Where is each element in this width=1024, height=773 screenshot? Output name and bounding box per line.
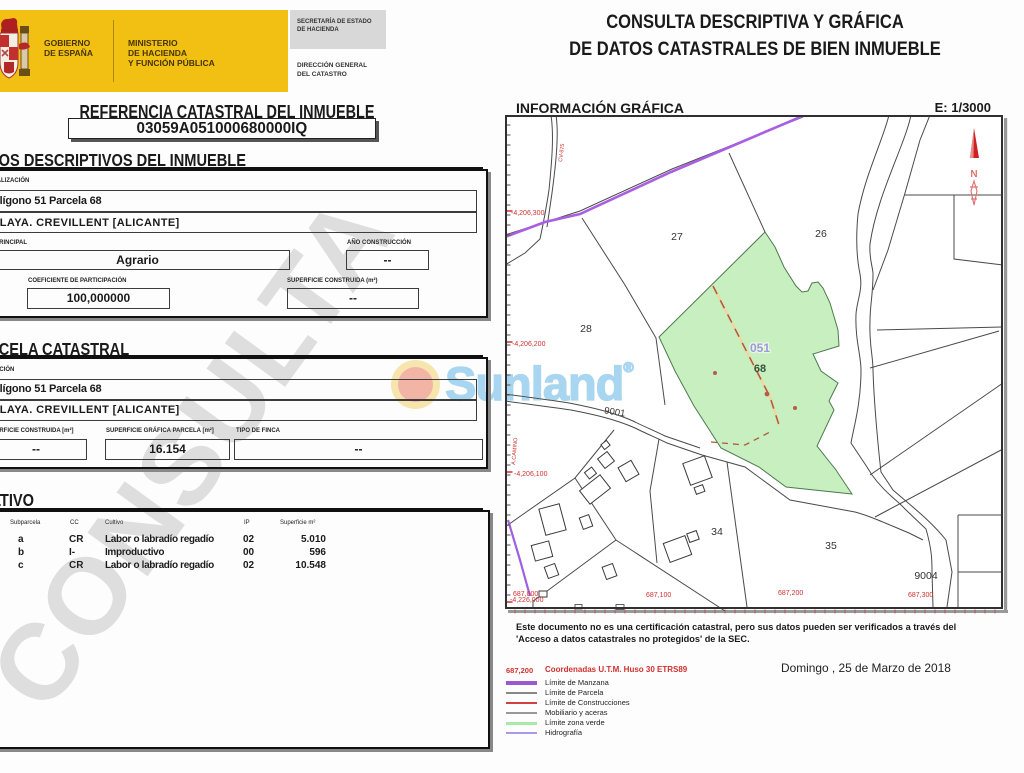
svg-text:35: 35 [825, 540, 837, 552]
svg-text:-4,226,000: -4,226,000 [510, 597, 544, 604]
svg-text:34: 34 [711, 526, 723, 538]
svg-text:N: N [970, 169, 977, 180]
svg-text:-4,206,300: -4,206,300 [511, 210, 545, 217]
svg-text:-4,206,200: -4,206,200 [512, 341, 546, 348]
svg-text:27: 27 [671, 231, 683, 243]
svg-text:687,200: 687,200 [778, 590, 803, 597]
svg-text:687,300: 687,300 [908, 592, 933, 599]
svg-text:28: 28 [580, 323, 592, 335]
svg-text:68: 68 [754, 363, 766, 375]
svg-text:26: 26 [815, 228, 827, 240]
svg-text:687,100: 687,100 [646, 592, 671, 599]
svg-text:051: 051 [750, 341, 770, 355]
svg-text:9004: 9004 [914, 570, 938, 582]
svg-text:-4,206,100: -4,206,100 [514, 471, 548, 478]
